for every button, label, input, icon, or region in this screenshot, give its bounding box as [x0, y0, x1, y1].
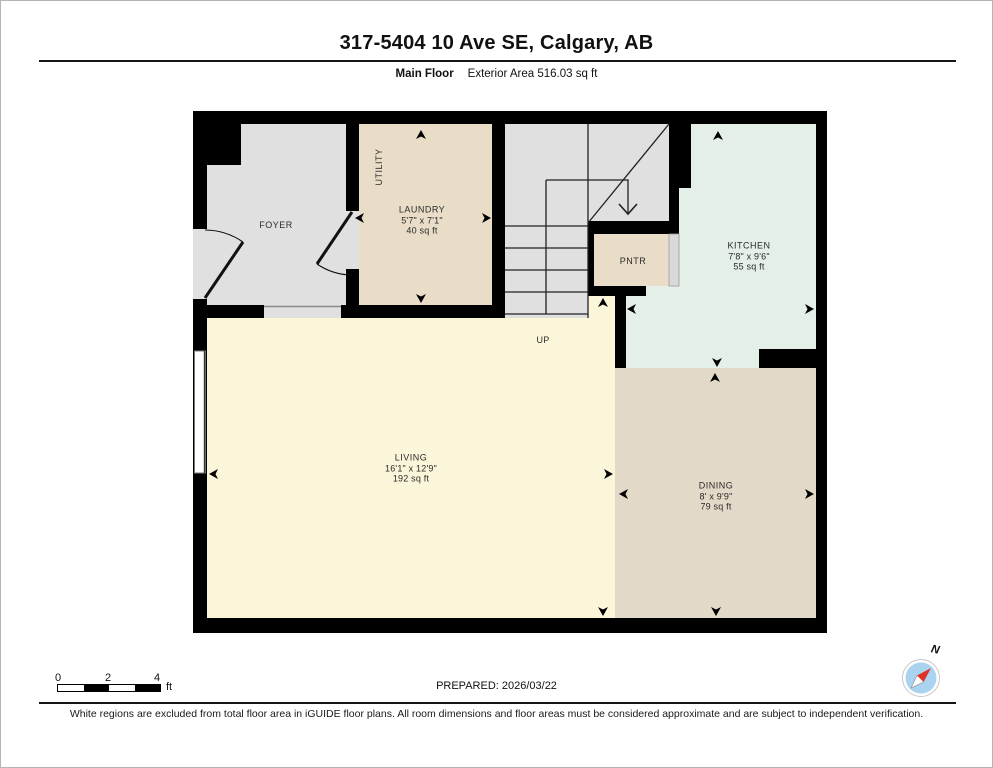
room-area: 55 sq ft [727, 261, 770, 272]
room-name: LAUNDRY [399, 204, 445, 215]
floorplan-drawing [1, 1, 993, 768]
room-name: UTILITY [374, 148, 385, 185]
room-name: DINING [699, 480, 734, 491]
foyer-label: FOYER [259, 220, 293, 231]
pantry-label: PNTR [620, 256, 647, 267]
room-dims: 7'8" x 9'6" [727, 251, 770, 262]
stairs-up-label: UP [537, 335, 550, 346]
room-area: 40 sq ft [399, 225, 445, 236]
entry-door-opening [193, 229, 207, 299]
living-label: LIVING 16'1" x 12'9" 192 sq ft [385, 452, 437, 484]
disclaimer-text: White regions are excluded from total fl… [1, 708, 992, 720]
prepared-date: PREPARED: 2026/03/22 [1, 680, 992, 692]
footer-divider [39, 702, 956, 704]
kitchen-label: KITCHEN 7'8" x 9'6" 55 sq ft [727, 240, 770, 272]
room-dims: 5'7" x 7'1" [399, 215, 445, 226]
floorplan-page: 317-5404 10 Ave SE, Calgary, AB Main Flo… [0, 0, 993, 768]
room-name: PNTR [620, 256, 647, 267]
laundry-label: LAUNDRY 5'7" x 7'1" 40 sq ft [399, 204, 445, 236]
room-dims: 8' x 9'9" [699, 491, 734, 502]
utility-label: UTILITY [374, 148, 385, 185]
up-text: UP [537, 335, 550, 346]
room-name: FOYER [259, 220, 293, 231]
dining-label: DINING 8' x 9'9" 79 sq ft [699, 480, 734, 512]
room-dims: 16'1" x 12'9" [385, 463, 437, 474]
room-name: KITCHEN [727, 240, 770, 251]
compass-icon [898, 655, 944, 701]
room-name: LIVING [385, 452, 437, 463]
room-area: 79 sq ft [699, 501, 734, 512]
pantry-door [669, 234, 679, 286]
room-area: 192 sq ft [385, 473, 437, 484]
